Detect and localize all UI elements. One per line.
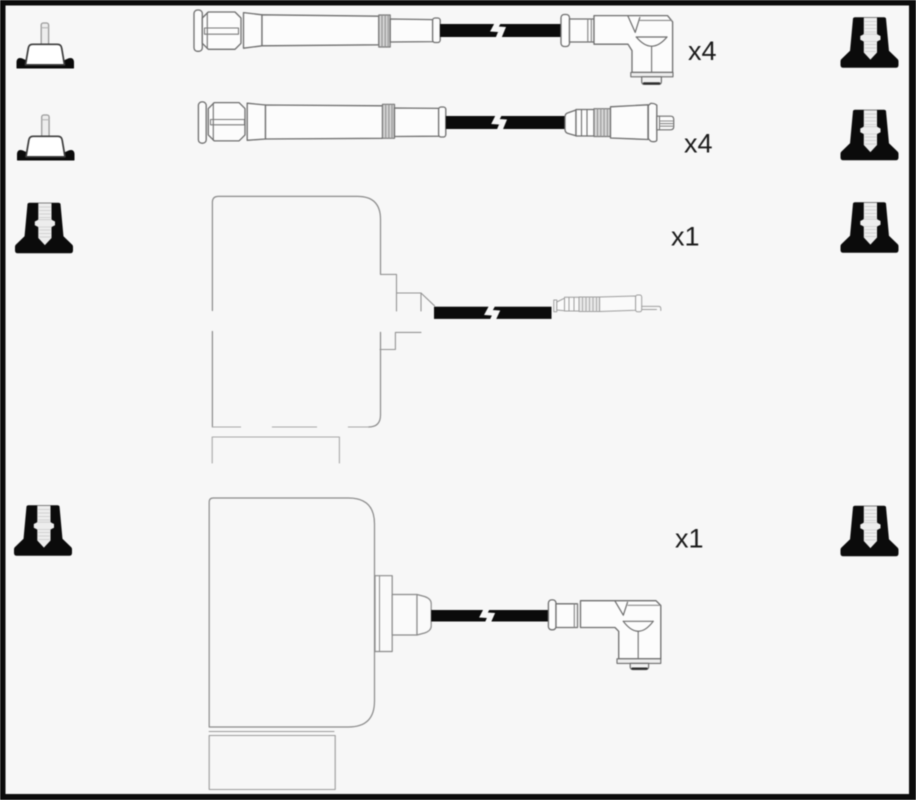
svg-text:x1: x1 <box>671 222 700 252</box>
svg-text:x4: x4 <box>688 36 717 66</box>
svg-text:x4: x4 <box>684 129 713 159</box>
svg-text:x1: x1 <box>675 524 704 554</box>
